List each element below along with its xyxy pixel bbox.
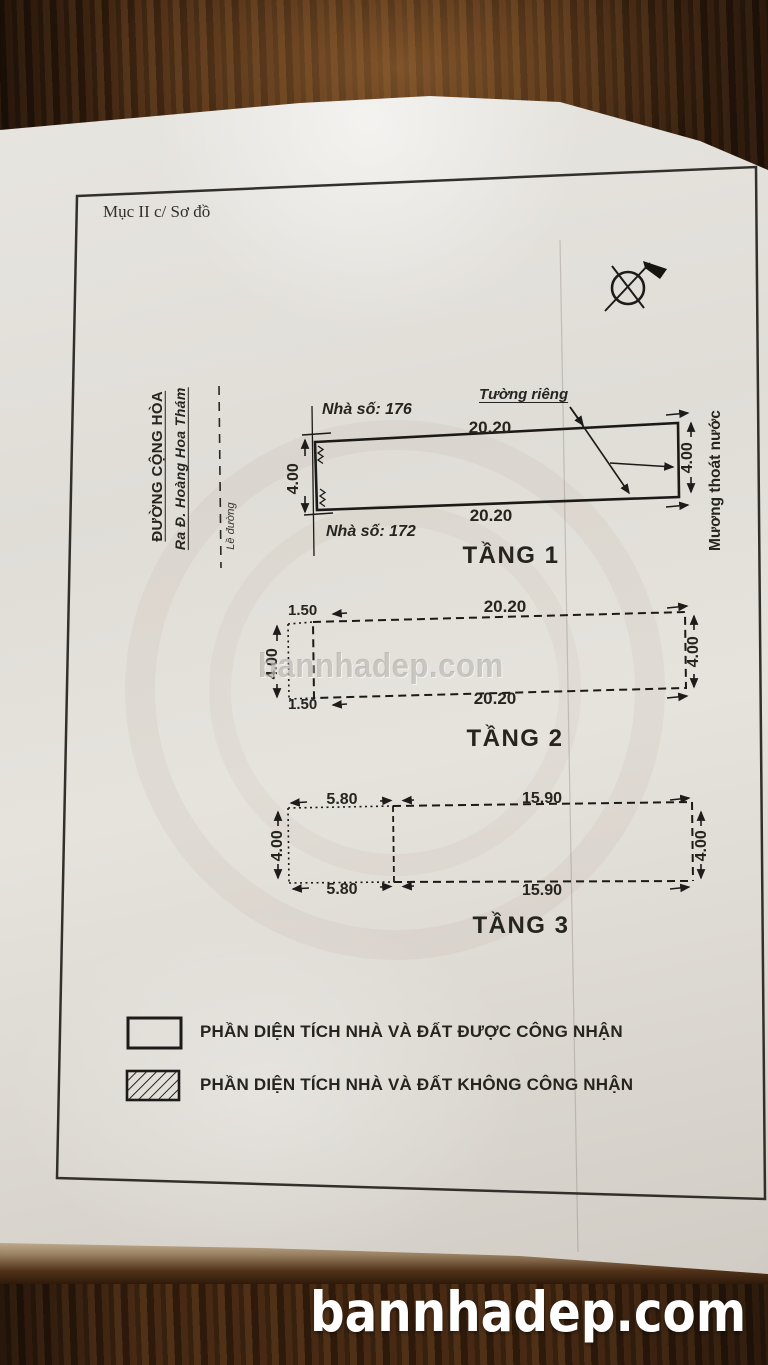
floor1-width-bottom: 20.20 <box>456 507 526 526</box>
floor1-width-top: 20.20 <box>455 419 525 438</box>
photo-scene: Mục II c/ Sơ đồ ĐƯỜNG CỘNG HÒA Ra Đ. Hoà… <box>0 0 768 1365</box>
section-label: Mục II c/ Sơ đồ <box>103 203 210 222</box>
legend-swatch-recognized <box>128 1018 181 1048</box>
floor1-house-number-top: Nhà số: 176 <box>322 401 412 419</box>
legend-label-not-recognized: PHẦN DIỆN TÍCH NHÀ VÀ ĐẤT KHÔNG CÔNG NHẬ… <box>200 1076 633 1095</box>
floor1-depth-left: 4.00 <box>285 457 303 501</box>
floor3-front-width-bottom: 5.80 <box>317 881 367 899</box>
curb-label: Lề đường <box>225 496 237 556</box>
legend-label-recognized: PHẦN DIỆN TÍCH NHÀ VÀ ĐẤT ĐƯỢC CÔNG NHẬN <box>200 1023 623 1042</box>
floor2-width-bottom: 20.20 <box>460 690 530 709</box>
street-name: ĐƯỜNG CỘNG HÒA <box>150 381 167 551</box>
document-paper: Mục II c/ Sơ đồ ĐƯỜNG CỘNG HÒA Ra Đ. Hoà… <box>0 0 768 1365</box>
floor2-width-top: 20.20 <box>470 598 540 617</box>
floor3-depth-left: 4.00 <box>269 824 287 868</box>
floor3-title: TẦNG 3 <box>456 913 586 939</box>
floor3-rear-width-top: 15.90 <box>507 790 577 808</box>
legend-swatches <box>127 1018 181 1100</box>
center-watermark: bannhadep.com <box>258 648 504 685</box>
floor2-offset-bottom: 1.50 <box>288 697 317 714</box>
floor1-depth-right: 4.00 <box>679 436 697 480</box>
drain-note: Mương thoát nước <box>707 383 724 578</box>
compass-north-icon <box>605 261 667 311</box>
floor2-depth-right: 4.00 <box>685 630 703 674</box>
floor1-wall-note: Tường riêng <box>479 387 568 404</box>
site-banner: bannhadep.com <box>310 1280 746 1344</box>
floor2-title: TẦNG 2 <box>450 726 580 752</box>
legend-swatch-not-recognized <box>127 1071 179 1100</box>
floor3-rear-width-bottom: 15.90 <box>507 882 577 900</box>
floor1-title: TẦNG 1 <box>446 543 576 569</box>
floor3-depth-right: 4.00 <box>693 824 711 868</box>
floor3-front-width-top: 5.80 <box>317 791 367 809</box>
floor2-offset-top: 1.50 <box>288 603 317 620</box>
floor1-house-number-bottom: Nhà số: 172 <box>326 523 416 541</box>
curb-line <box>219 386 221 568</box>
street-direction: Ra Đ. Hoàng Hoa Thám <box>173 376 188 561</box>
